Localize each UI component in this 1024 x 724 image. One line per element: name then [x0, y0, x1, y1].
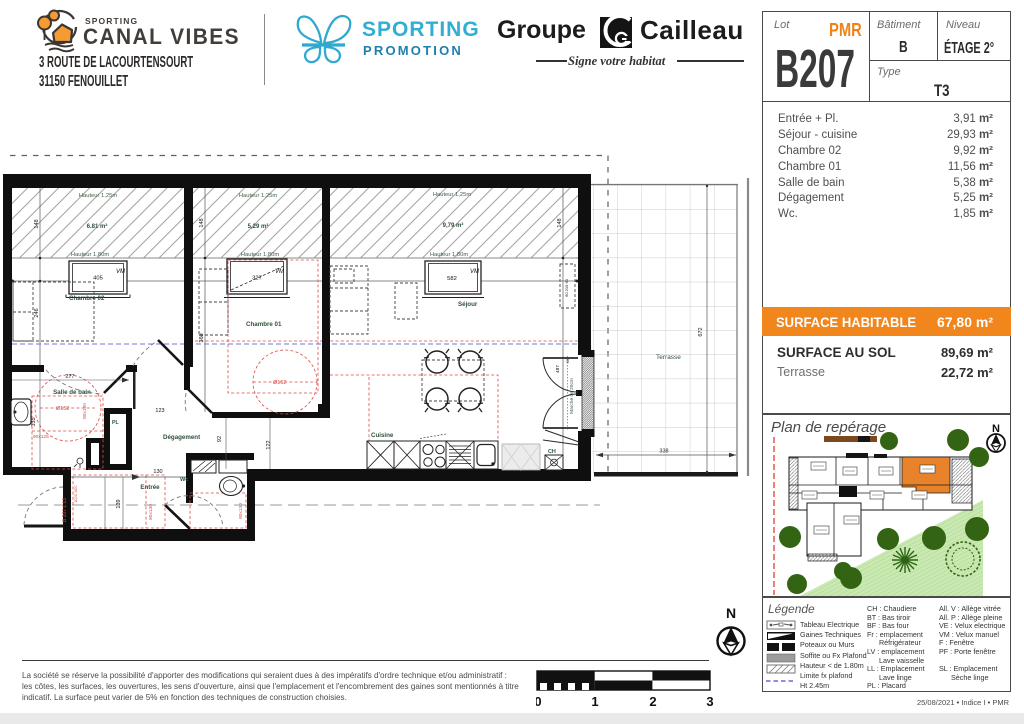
svg-text:1D2C-6DC: 1D2C-6DC	[74, 485, 78, 503]
svg-text:VM: VM	[275, 269, 284, 275]
svg-text:60 219 60: 60 219 60	[564, 278, 569, 297]
svg-text:Salle de bain: Salle de bain	[53, 389, 91, 396]
svg-text:9,79 m²: 9,79 m²	[443, 222, 464, 229]
svg-text:2: 2	[649, 694, 656, 709]
svg-text:Chambre 02: Chambre 02	[69, 295, 105, 302]
svg-text:130: 130	[153, 469, 162, 475]
svg-text:148: 148	[557, 218, 563, 227]
svg-text:246: 246	[34, 308, 40, 317]
svg-text:277: 277	[65, 374, 74, 380]
svg-text:N: N	[726, 605, 736, 621]
svg-text:80x130: 80x130	[238, 503, 244, 519]
svg-text:Hauteur 1,25m: Hauteur 1,25m	[433, 192, 472, 198]
svg-text:Hauteur 1,25m: Hauteur 1,25m	[239, 193, 278, 199]
svg-text:5,29 m²: 5,29 m²	[248, 223, 269, 230]
svg-text:Terrasse: Terrasse	[656, 354, 681, 361]
svg-text:Cuisine: Cuisine	[371, 432, 394, 439]
svg-text:Ø152: Ø152	[273, 380, 286, 386]
svg-text:90x125: 90x125	[33, 434, 49, 440]
svg-text:Hauteur 1,80m: Hauteur 1,80m	[430, 252, 469, 258]
svg-text:PL: PL	[112, 420, 119, 426]
svg-text:122: 122	[266, 440, 272, 449]
svg-text:148: 148	[34, 219, 40, 228]
svg-text:0: 0	[536, 694, 542, 709]
svg-text:Marche de 20cm: Marche de 20cm	[569, 378, 575, 414]
svg-text:Hauteur 1,80m: Hauteur 1,80m	[241, 252, 280, 258]
svg-text:123: 123	[155, 408, 164, 414]
svg-text:582: 582	[447, 276, 457, 282]
svg-text:487: 487	[555, 365, 561, 373]
svg-text:6.81 m²: 6.81 m²	[87, 223, 108, 230]
svg-text:Ø152: Ø152	[56, 406, 69, 412]
svg-text:VM: VM	[470, 269, 479, 275]
svg-text:80x180: 80x180	[82, 403, 88, 419]
svg-text:Dégagement: Dégagement	[163, 434, 200, 441]
svg-text:CH: CH	[548, 449, 556, 455]
svg-text:335: 335	[31, 417, 37, 426]
svg-text:148: 148	[199, 218, 205, 227]
svg-text:VM: VM	[116, 269, 125, 275]
svg-text:80x130: 80x130	[148, 504, 154, 520]
svg-text:Wc: Wc	[180, 477, 188, 483]
svg-text:Entrée: Entrée	[140, 484, 160, 491]
svg-text:Séjour: Séjour	[458, 301, 478, 308]
svg-text:672: 672	[698, 327, 704, 336]
svg-text:B 207 L 13: B 207 L 13	[62, 498, 68, 522]
svg-text:139: 139	[116, 499, 122, 508]
svg-text:327: 327	[252, 276, 262, 282]
svg-text:338: 338	[659, 449, 668, 455]
svg-text:Hauteur 1,80m: Hauteur 1,80m	[71, 252, 110, 258]
svg-text:Hauteur 1,25m: Hauteur 1,25m	[79, 193, 118, 199]
svg-text:1: 1	[591, 694, 598, 709]
svg-text:405: 405	[93, 276, 103, 282]
svg-text:92: 92	[217, 436, 223, 442]
svg-text:3: 3	[706, 694, 713, 709]
svg-text:Chambre 01: Chambre 01	[246, 321, 282, 328]
